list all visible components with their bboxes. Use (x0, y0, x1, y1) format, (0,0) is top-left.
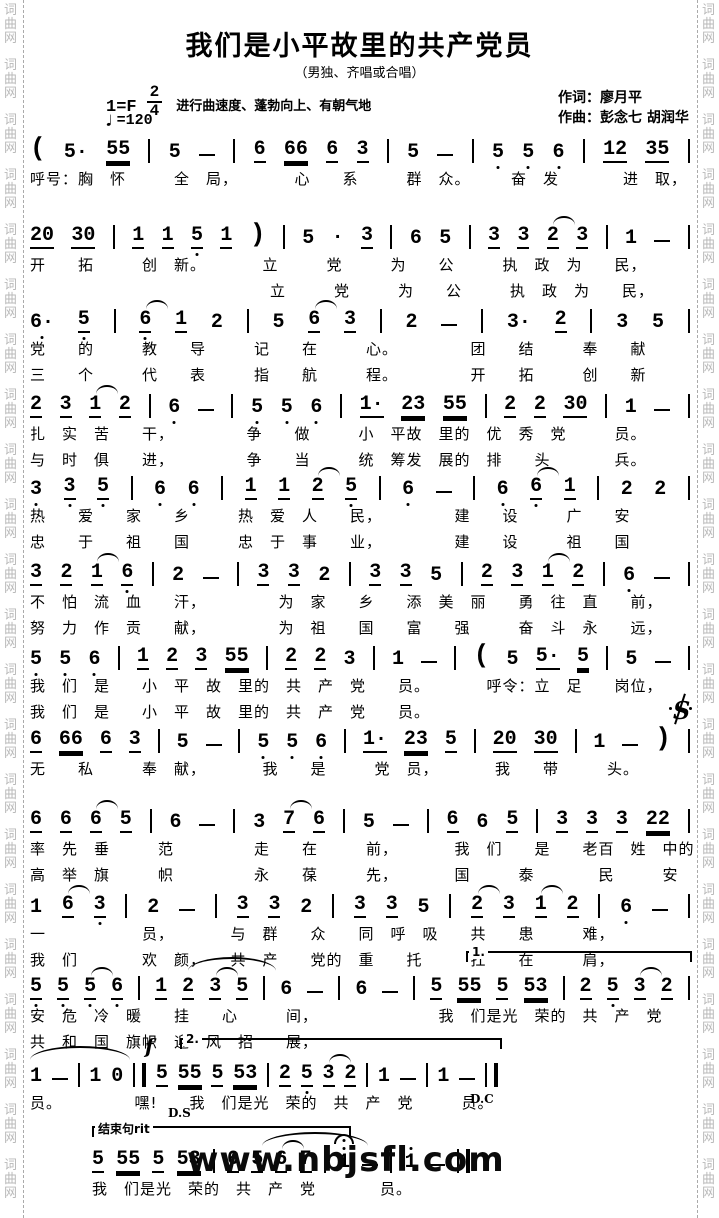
barline (332, 894, 334, 918)
note: 5 (59, 650, 71, 670)
barline (267, 1063, 269, 1087)
note: 6 (90, 810, 102, 833)
note: 23 (401, 395, 425, 418)
barline (426, 1063, 428, 1087)
note: 1 (137, 647, 149, 670)
note: 5 (97, 477, 109, 500)
note: 2 (547, 226, 559, 249)
note: 53 (524, 977, 548, 1000)
note: 1 (625, 398, 637, 418)
note: 5 (496, 977, 508, 1000)
note: 2 (285, 647, 297, 670)
slur-arc (478, 885, 500, 894)
barline (113, 225, 115, 249)
note: 3 (195, 647, 207, 670)
note: 6 (410, 229, 422, 249)
note: 5 (30, 650, 42, 670)
barline (380, 309, 382, 333)
barline (688, 976, 690, 1000)
lyrics-line: 三 个 代 表 指 航 程。 开 拓 创 新 (30, 366, 690, 385)
low-octave-dot (41, 336, 44, 339)
note: 2 (572, 563, 584, 586)
note: 2 (318, 566, 330, 586)
low-octave-dot (305, 1091, 308, 1094)
barline (237, 562, 239, 586)
note: 5 (407, 143, 419, 163)
lyrics-line: 安 危 冷 暖 挂 心 间， 我 们是光 荣的 共 产 党 (30, 1007, 690, 1026)
barline (338, 976, 340, 1000)
low-octave-dot (320, 756, 323, 759)
sheet-music-page: 词曲网词曲网词曲网词曲网词曲网词曲网词曲网词曲网词曲网词曲网词曲网词曲网词曲网词… (0, 0, 719, 1218)
barline (603, 562, 605, 586)
note: 20 (493, 730, 517, 753)
note: 5 (281, 398, 293, 418)
note: 3 (30, 480, 42, 500)
note: 2 (471, 895, 483, 918)
note: 3 (586, 810, 598, 833)
note: 3 (257, 563, 269, 586)
barline (215, 894, 217, 918)
music-system: (5·5556666355561235呼号：胸 怀 全 局， 心 系 群 众。 … (30, 136, 690, 189)
low-octave-dot (144, 337, 147, 340)
note: 5 (251, 398, 263, 418)
barline (131, 476, 133, 500)
note: 6 (313, 810, 325, 833)
low-octave-dot (68, 504, 71, 507)
note: 3 (64, 477, 76, 500)
barline (379, 476, 381, 500)
barline (688, 225, 690, 249)
barline (233, 809, 235, 833)
note: 3 (253, 813, 265, 833)
note: 3 (369, 563, 381, 586)
barline (454, 646, 456, 670)
dash-note (382, 991, 398, 993)
note: 55 (178, 1064, 202, 1087)
note: 6 (111, 977, 123, 1000)
low-octave-dot (62, 1004, 65, 1007)
note: 2 (406, 313, 418, 333)
double-barline (485, 1063, 498, 1087)
notes-row: 3216233233523126 (30, 559, 690, 586)
note: 6 (30, 730, 42, 753)
note: 3 (129, 730, 141, 753)
note: 5 (492, 143, 504, 163)
note: 5 (522, 143, 534, 163)
dash-note (652, 909, 668, 911)
low-octave-dot (35, 1004, 38, 1007)
note: 3 (357, 140, 369, 163)
barline (366, 1063, 368, 1087)
note: 6 (170, 813, 182, 833)
lyrics-line: 党 的 教 导 记 在 心。 团 结 奉 献 (30, 340, 690, 359)
note: 6 (623, 566, 635, 586)
notes-row: 335661125666122 (30, 473, 690, 500)
low-octave-dot (82, 337, 85, 340)
notes-row: 556123552231(55·55 (30, 643, 690, 670)
lyrics-line: 一 员， 与 群 众 同 呼 吸 共 患 难， (30, 925, 690, 944)
volta-1-bracket: 1. (466, 951, 692, 962)
note: 1 (437, 1067, 449, 1087)
barline (138, 976, 140, 1000)
barline (149, 394, 151, 418)
note: 30 (71, 226, 95, 249)
note: 5 (430, 566, 442, 586)
low-octave-dot (611, 1004, 614, 1007)
barline (114, 309, 116, 333)
note: 55 (225, 647, 249, 670)
note: 30 (563, 395, 587, 418)
barline (78, 1063, 80, 1087)
barline (343, 809, 345, 833)
barline (688, 309, 690, 333)
lyrics-line: 我 们是光 荣的 共 产 党 员。 (92, 1180, 470, 1199)
low-octave-dot (256, 421, 259, 424)
note: 1 (162, 226, 174, 249)
barline (125, 894, 127, 918)
notes-row: 231265561·235522301 (30, 391, 690, 418)
note: 3 (237, 895, 249, 918)
low-octave-dot (535, 504, 538, 507)
note: 53 (233, 1064, 257, 1087)
barline (473, 476, 475, 500)
note: 5 (363, 813, 375, 833)
note: 6 (447, 810, 459, 833)
note: 3 (268, 895, 280, 918)
barline (413, 976, 415, 1000)
lyrics-line: 努 力 作 贡 献， 为 祖 国 富 强 奋 斗 永 远， (30, 619, 690, 638)
note: 5· (64, 143, 88, 163)
music-system: 20301151)5·36533231开 拓 创 新。 立 党 为 公 执 政 … (30, 222, 690, 301)
dash-note (52, 1078, 68, 1080)
dash-note (199, 154, 215, 156)
dash-note (654, 409, 670, 411)
note: 3 (576, 226, 588, 249)
note: 1 (220, 226, 232, 249)
dash-note (622, 744, 638, 746)
note: 6 (168, 398, 180, 418)
barline (597, 476, 599, 500)
note: 7 (283, 810, 295, 833)
note: 22 (646, 810, 670, 833)
note: 5 (418, 898, 430, 918)
music-system: 6666355561·23520301)无 私 奉 献， 我 是 党 员， 我 … (30, 726, 690, 779)
volta-label: 2. (183, 1032, 202, 1046)
low-octave-dot (196, 253, 199, 256)
note: 2 (211, 313, 223, 333)
note: 6 (497, 480, 509, 500)
barline (148, 139, 150, 163)
note: 2 (344, 1064, 356, 1087)
note: 2 (147, 898, 159, 918)
low-octave-dot (285, 421, 288, 424)
note: 2 (654, 480, 666, 500)
dash-note (654, 577, 670, 579)
notes-row: 55561235665555532532 (30, 973, 690, 1000)
note: 6 (30, 810, 42, 833)
note: 1 (175, 310, 187, 333)
note: 0 (111, 1067, 123, 1087)
note: 3 (517, 226, 529, 249)
parenthesis: ) (655, 723, 671, 753)
note: 6 (62, 895, 74, 918)
note: 6 (620, 898, 632, 918)
segno-icon: S (670, 696, 690, 726)
barline (688, 394, 690, 418)
note: 5· (536, 647, 560, 670)
note: 2 (555, 310, 567, 333)
low-octave-dot (496, 166, 499, 169)
note: 1 (378, 1067, 390, 1087)
barline (387, 139, 389, 163)
note: 3 (30, 563, 42, 586)
augmentation-dot: · (332, 226, 344, 249)
low-octave-dot (159, 503, 162, 506)
barline (575, 729, 577, 753)
note: 6 (139, 310, 151, 333)
low-octave-dot (315, 421, 318, 424)
note: 5 (301, 1064, 313, 1087)
barline (563, 976, 565, 1000)
dash-note (654, 240, 670, 242)
note: 6 (402, 480, 414, 500)
slur-arc (553, 216, 575, 225)
music-system: 231265561·235522301扎 实 苦 干， 争 做 小 平故 里的 … (30, 391, 690, 470)
note: 3 (488, 226, 500, 249)
barline (688, 476, 690, 500)
lyrics-line: 不 怕 流 血 汗， 为 家 乡 添 美 丽 勇 往 直 前， (30, 593, 690, 612)
note: 6 (154, 480, 166, 500)
barline (583, 139, 585, 163)
note: 5 (652, 313, 664, 333)
low-octave-dot (35, 503, 38, 506)
volta-label: 1. (469, 945, 488, 959)
low-octave-dot (102, 504, 105, 507)
note: 5 (625, 650, 637, 670)
note: 3 (634, 977, 646, 1000)
note: 2 (661, 977, 673, 1000)
slur-arc (97, 553, 119, 562)
note: 1 (593, 733, 605, 753)
note: 6 (254, 140, 266, 163)
note: 3 (344, 310, 356, 333)
note: 6 (315, 733, 327, 753)
note: 5 (506, 810, 518, 833)
lyrics-line: 我 们 是 小 平 故 里的 共 产 党 员。 (30, 703, 690, 722)
note: 55 (443, 395, 467, 418)
forte-dynamic: f (145, 1034, 154, 1058)
barline (469, 225, 471, 249)
note: 5 (445, 730, 457, 753)
note: 2 (279, 1064, 291, 1087)
note: 5 (286, 733, 298, 753)
slur-arc (96, 385, 118, 394)
low-octave-dot (64, 673, 67, 676)
note: 1 (30, 898, 42, 918)
note: 1 (89, 395, 101, 418)
low-octave-dot (89, 1004, 92, 1007)
low-octave-dot (98, 922, 101, 925)
slur-arc (315, 300, 337, 309)
note: 6 (530, 477, 542, 500)
lyrics-line: 高 举 旗 帜 永 葆 先， 国 泰 民 安 (30, 866, 690, 885)
barline (605, 394, 607, 418)
note: 35 (645, 140, 669, 163)
note: 5 (78, 310, 90, 333)
low-octave-dot (625, 921, 628, 924)
slur-arc (68, 885, 90, 894)
low-octave-dot (527, 166, 530, 169)
barline (481, 309, 483, 333)
barline (390, 225, 392, 249)
note: 3· (507, 313, 531, 333)
note: 6 (355, 980, 367, 1000)
slur-arc (91, 967, 113, 976)
barline (474, 729, 476, 753)
note: 1 (91, 563, 103, 586)
barline (461, 562, 463, 586)
barline (340, 394, 342, 418)
note: 5 (152, 1150, 164, 1173)
parenthesis: ( (474, 640, 490, 670)
note: 2 (314, 647, 326, 670)
note: 1 (535, 895, 547, 918)
note: 5 (177, 733, 189, 753)
barline (263, 976, 265, 1000)
note: 2 (504, 395, 516, 418)
lyrics-line: 率 先 垂 范 走 在 前， 我 们 是 老百 姓 中的 (30, 840, 690, 859)
barline (118, 646, 120, 670)
low-octave-dot (407, 503, 410, 506)
parenthesis: ) (250, 219, 266, 249)
note: 3 (94, 895, 106, 918)
barline (344, 729, 346, 753)
double-barline (133, 1063, 146, 1087)
note: 5 (345, 477, 357, 500)
note: 1· (363, 730, 387, 753)
note: 2 (534, 395, 546, 418)
note: 2 (621, 480, 633, 500)
note: 3 (361, 226, 373, 249)
note: 2 (119, 395, 131, 418)
note: 5 (211, 1064, 223, 1087)
music-system: 66656376566533322率 先 垂 范 走 在 前， 我 们 是 老百… (30, 806, 690, 885)
low-octave-dot (501, 503, 504, 506)
note: 6 (326, 140, 338, 163)
barline (536, 809, 538, 833)
notes-row: 6·561256323·235 (30, 306, 690, 333)
note: 1 (392, 650, 404, 670)
volta-label: 结束句rit (95, 1120, 153, 1137)
dash-note (459, 1078, 475, 1080)
low-octave-dot (173, 421, 176, 424)
note: 1 (245, 477, 257, 500)
score-systems: (5·5556666355561235呼号：胸 怀 全 局， 心 系 群 众。 … (0, 0, 719, 1218)
slur-arc (290, 800, 312, 809)
barline (247, 309, 249, 333)
note: 3 (511, 563, 523, 586)
barline (427, 809, 429, 833)
note: 5 (236, 977, 248, 1000)
notes-row: 20301151)5·36533231 (30, 222, 690, 249)
note: 5 (169, 143, 181, 163)
note: 6 (100, 730, 112, 753)
note: 5 (120, 810, 132, 833)
barline (349, 562, 351, 586)
ds-marker: D.S (168, 1106, 191, 1120)
lyrics-line: 扎 实 苦 干， 争 做 小 平故 里的 优 秀 党 员。 (30, 425, 690, 444)
note: 55 (116, 1150, 140, 1173)
note: 12 (603, 140, 627, 163)
low-octave-dot (35, 673, 38, 676)
note: 2 (567, 895, 579, 918)
barline (590, 309, 592, 333)
note: 2 (481, 563, 493, 586)
note: 1 (542, 563, 554, 586)
note: 6 (60, 810, 72, 833)
note: 5 (30, 977, 42, 1000)
note: 20 (30, 226, 54, 249)
dash-note (421, 661, 437, 663)
note: 5 (507, 650, 519, 670)
note: 2 (30, 395, 42, 418)
barline (688, 729, 690, 753)
low-octave-dot (291, 756, 294, 759)
dash-note (393, 824, 409, 826)
barline (373, 646, 375, 670)
barline (152, 562, 154, 586)
note: 5 (439, 229, 451, 249)
barline (449, 894, 451, 918)
notes-row: 163233233523126 (30, 891, 690, 918)
music-system: 110555553253211员。 嘿! 我 们是光 荣的 共 产 党 员。f2… (30, 1060, 498, 1113)
dash-note (199, 824, 215, 826)
note: 55 (457, 977, 481, 1000)
barline (606, 225, 608, 249)
barline (485, 394, 487, 418)
barline (150, 809, 152, 833)
low-octave-dot (192, 503, 195, 506)
low-octave-dot (628, 589, 631, 592)
music-system: 6·561256323·235党 的 教 导 记 在 心。 团 结 奉 献三 个… (30, 306, 690, 385)
barline (688, 809, 690, 833)
note: 5 (302, 229, 314, 249)
note: 3 (354, 895, 366, 918)
barline (598, 894, 600, 918)
note: 5 (92, 1150, 104, 1173)
lyrics-line: 热 爱 家 乡 热 爱 人 民， 建 设 广 安 (30, 507, 690, 526)
barline (688, 139, 690, 163)
note: 1 (89, 1067, 101, 1087)
note: 1 (132, 226, 144, 249)
lyrics-line: 我 们 是 小 平 故 里的 共 产 党 员。 呼令：立 足 岗位， (30, 677, 690, 696)
dash-note (436, 491, 452, 493)
barline (283, 225, 285, 249)
note: 6 (188, 480, 200, 500)
barline (221, 476, 223, 500)
low-octave-dot (126, 590, 129, 593)
music-system: 3216233233523126不 怕 流 血 汗， 为 家 乡 添 美 丽 勇… (30, 559, 690, 638)
slur-arc (96, 800, 118, 809)
lyrics-line: 员。 嘿! 我 们是光 荣的 共 产 党 员。 (30, 1094, 498, 1113)
note: 3 (616, 313, 628, 333)
slur-arc (548, 553, 570, 562)
notes-row: (5·5556666355561235 (30, 136, 690, 163)
barline (266, 646, 268, 670)
note: 6· (30, 313, 54, 333)
note: 2 (312, 477, 324, 500)
dash-note (441, 324, 457, 326)
